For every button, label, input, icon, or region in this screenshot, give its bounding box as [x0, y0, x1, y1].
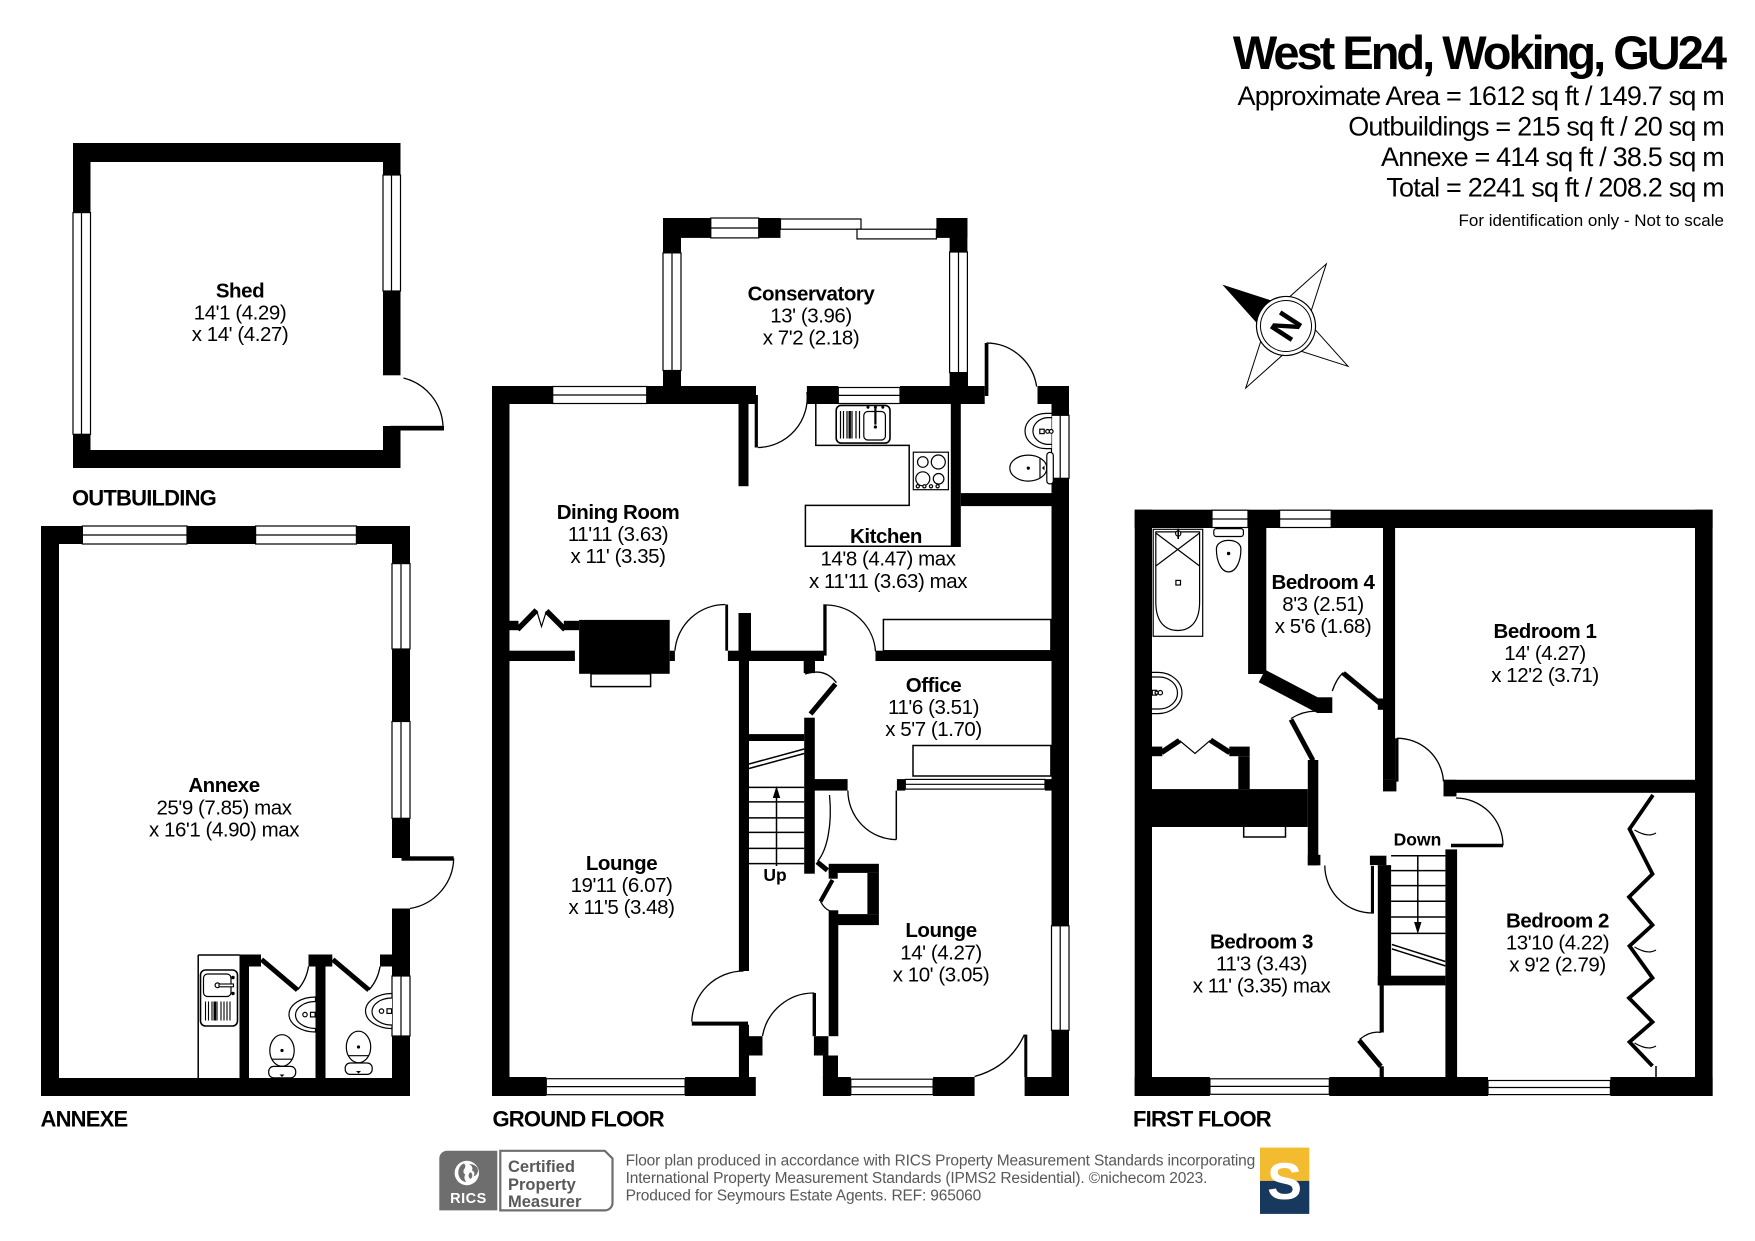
svg-text:11'11 (3.63): 11'11 (3.63)	[568, 523, 668, 546]
svg-text:Annexe: Annexe	[188, 774, 259, 797]
svg-text:Bedroom 4: Bedroom 4	[1271, 571, 1375, 594]
svg-text:x 11'5 (3.48): x 11'5 (3.48)	[569, 896, 675, 919]
svg-text:Floor plan produced in accorda: Floor plan produced in accordance with R…	[626, 1153, 1256, 1170]
svg-text:13'10 (4.22): 13'10 (4.22)	[1506, 932, 1609, 955]
svg-text:14'8 (4.47) max: 14'8 (4.47) max	[820, 548, 956, 571]
svg-text:x 11' (3.35): x 11' (3.35)	[571, 545, 666, 568]
svg-text:x 16'1 (4.90) max: x 16'1 (4.90) max	[149, 819, 300, 842]
svg-text:11'6 (3.51): 11'6 (3.51)	[888, 696, 979, 719]
svg-text:Total = 2241 sq ft / 208.2 sq: Total = 2241 sq ft / 208.2 sq m	[1386, 173, 1724, 203]
svg-text:x 9'2 (2.79): x 9'2 (2.79)	[1509, 954, 1606, 977]
svg-text:Annexe = 414 sq ft / 38.5 sq m: Annexe = 414 sq ft / 38.5 sq m	[1381, 142, 1724, 172]
svg-text:14' (4.27): 14' (4.27)	[900, 942, 981, 965]
svg-text:19'11 (6.07): 19'11 (6.07)	[571, 874, 673, 897]
svg-text:Lounge: Lounge	[586, 852, 657, 875]
svg-text:West End, Woking, GU24: West End, Woking, GU24	[1233, 26, 1727, 79]
svg-text:Produced for Seymours Estate A: Produced for Seymours Estate Agents. REF…	[626, 1188, 982, 1205]
svg-text:25'9 (7.85) max: 25'9 (7.85) max	[156, 797, 292, 820]
svg-text:ANNEXE: ANNEXE	[41, 1107, 128, 1132]
svg-text:S: S	[1267, 1153, 1302, 1211]
svg-text:FIRST FLOOR: FIRST FLOOR	[1133, 1107, 1272, 1132]
svg-text:Bedroom 3: Bedroom 3	[1210, 931, 1313, 954]
svg-text:x 11'11 (3.63) max: x 11'11 (3.63) max	[809, 570, 968, 593]
svg-text:For identification only - Not: For identification only - Not to scale	[1458, 211, 1724, 230]
svg-text:11'3 (3.43): 11'3 (3.43)	[1216, 953, 1307, 976]
svg-text:14'1 (4.29): 14'1 (4.29)	[194, 301, 286, 324]
svg-text:Dining Room: Dining Room	[557, 501, 680, 524]
svg-text:Kitchen: Kitchen	[850, 525, 922, 548]
svg-text:Conservatory: Conservatory	[748, 283, 876, 306]
svg-text:x 5'7 (1.70): x 5'7 (1.70)	[885, 718, 982, 741]
svg-text:RICS: RICS	[450, 1191, 487, 1207]
svg-text:x 7'2 (2.18): x 7'2 (2.18)	[763, 327, 860, 350]
svg-text:x 10' (3.05): x 10' (3.05)	[893, 964, 990, 987]
svg-text:13' (3.96): 13' (3.96)	[770, 305, 851, 328]
svg-text:OUTBUILDING: OUTBUILDING	[72, 486, 216, 511]
svg-text:8'3 (2.51): 8'3 (2.51)	[1282, 593, 1363, 616]
svg-text:Measurer: Measurer	[508, 1193, 582, 1211]
svg-text:Property: Property	[508, 1176, 577, 1194]
svg-text:Lounge: Lounge	[905, 919, 976, 942]
svg-text:Bedroom 2: Bedroom 2	[1506, 910, 1609, 933]
svg-text:x 14' (4.27): x 14' (4.27)	[192, 323, 289, 346]
svg-text:Approximate Area = 1612 sq ft: Approximate Area = 1612 sq ft / 149.7 sq…	[1238, 81, 1724, 111]
svg-text:Shed: Shed	[216, 280, 264, 303]
svg-text:Outbuildings = 215 sq ft / 20: Outbuildings = 215 sq ft / 20 sq m	[1348, 112, 1724, 142]
svg-text:GROUND FLOOR: GROUND FLOOR	[493, 1107, 665, 1132]
svg-text:x 12'2 (3.71): x 12'2 (3.71)	[1491, 664, 1598, 687]
svg-text:Down: Down	[1394, 830, 1442, 850]
svg-text:x 11' (3.35) max: x 11' (3.35) max	[1193, 975, 1332, 998]
svg-text:x 5'6 (1.68): x 5'6 (1.68)	[1275, 615, 1372, 638]
svg-text:Bedroom 1: Bedroom 1	[1493, 620, 1596, 643]
svg-text:International Property Measure: International Property Measurement Stand…	[626, 1170, 1208, 1187]
svg-text:Certified: Certified	[508, 1158, 575, 1176]
svg-text:Office: Office	[906, 674, 961, 697]
svg-text:Up: Up	[763, 865, 786, 885]
svg-text:14' (4.27): 14' (4.27)	[1504, 642, 1585, 665]
